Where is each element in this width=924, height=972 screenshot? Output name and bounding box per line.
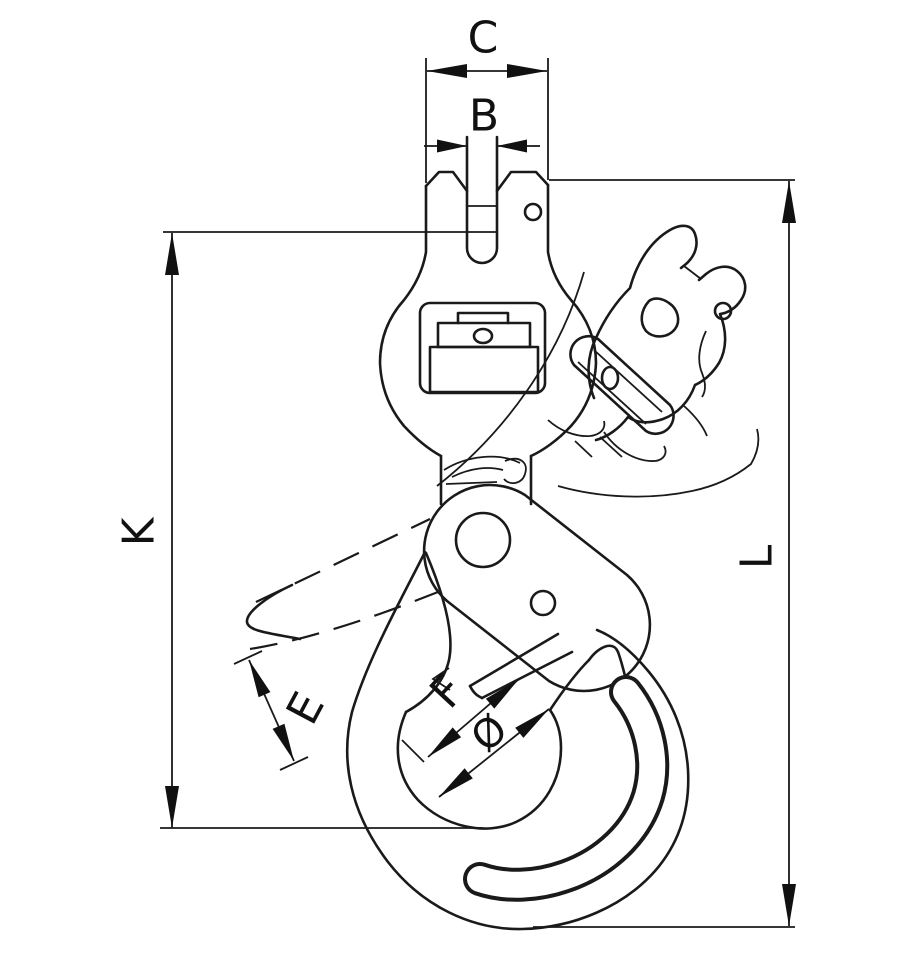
clevis-pin-hole: [525, 204, 541, 220]
phantom-rotated-clevis: [548, 226, 758, 497]
label-E: E: [277, 684, 335, 733]
hook-tip: [589, 646, 625, 676]
phantom-triangle-hole: [642, 299, 678, 337]
latch-tip-cap: [470, 686, 482, 698]
dimension-L: L: [533, 180, 796, 927]
technical-drawing-canvas: C B K L E: [0, 0, 924, 972]
locking-latch-lower: [482, 652, 572, 698]
dimension-diameter: Ø: [439, 706, 549, 797]
label-B: B: [469, 90, 499, 141]
eye-hole: [456, 513, 510, 567]
clevis-outline: [380, 137, 596, 456]
swivel-bearing-box: [420, 272, 584, 486]
label-L: L: [731, 544, 782, 569]
phantom-notch-bridge: [684, 266, 701, 279]
dimension-K: K: [113, 232, 497, 828]
bowl-crescent-slot: [480, 692, 652, 885]
latch-pivot-hole: [531, 591, 555, 615]
hook-eye-lobe: [424, 485, 650, 691]
phantom-latch-bar: [570, 336, 673, 457]
clevis-slot: [467, 137, 497, 263]
hook-drawing: C B K L E: [0, 0, 924, 972]
hook-bowl: [347, 552, 688, 929]
dimension-E: E: [234, 651, 335, 770]
label-F: F: [420, 665, 475, 718]
dimension-B: B: [424, 90, 540, 152]
label-diameter: Ø: [463, 706, 517, 761]
label-K: K: [113, 516, 164, 546]
label-C: C: [468, 12, 499, 63]
